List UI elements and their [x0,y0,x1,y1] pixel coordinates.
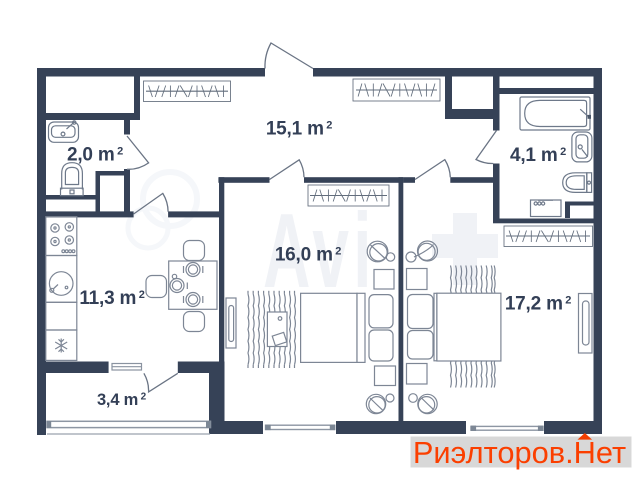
svg-text:11,3 m2: 11,3 m2 [79,288,144,309]
svg-text:15,1 m2: 15,1 m2 [266,119,332,140]
svg-text:16,0 m2: 16,0 m2 [275,245,341,266]
svg-text:17,2 m2: 17,2 m2 [505,294,571,315]
svg-text:Риэлторов.Нет: Риэлторов.Нет [413,435,626,470]
